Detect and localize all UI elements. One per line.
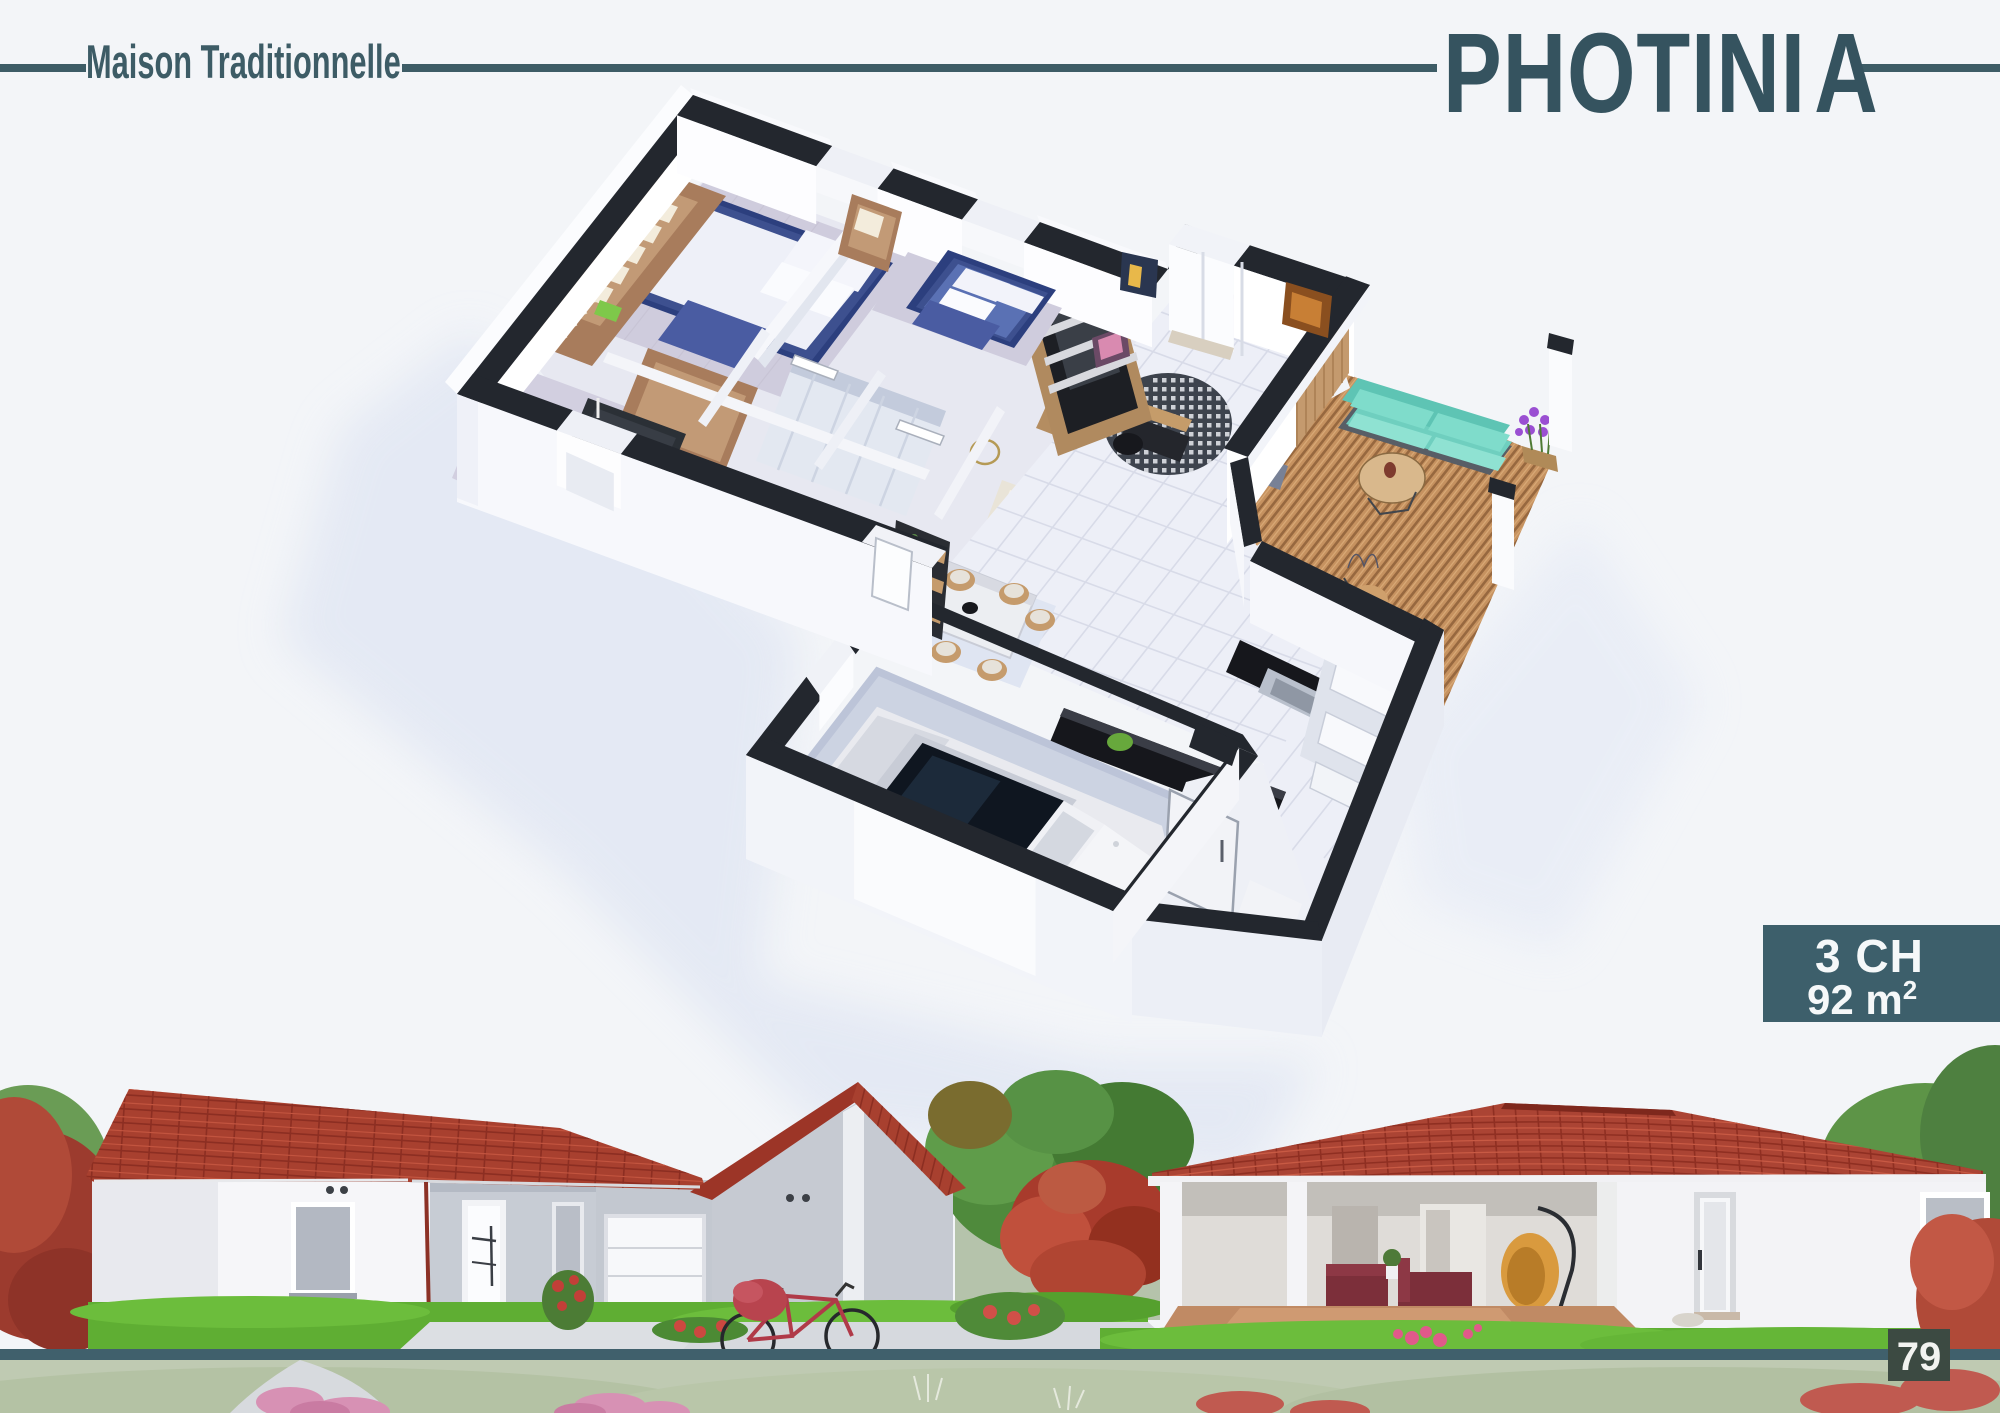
svg-text:79: 79 — [1897, 1335, 1942, 1379]
